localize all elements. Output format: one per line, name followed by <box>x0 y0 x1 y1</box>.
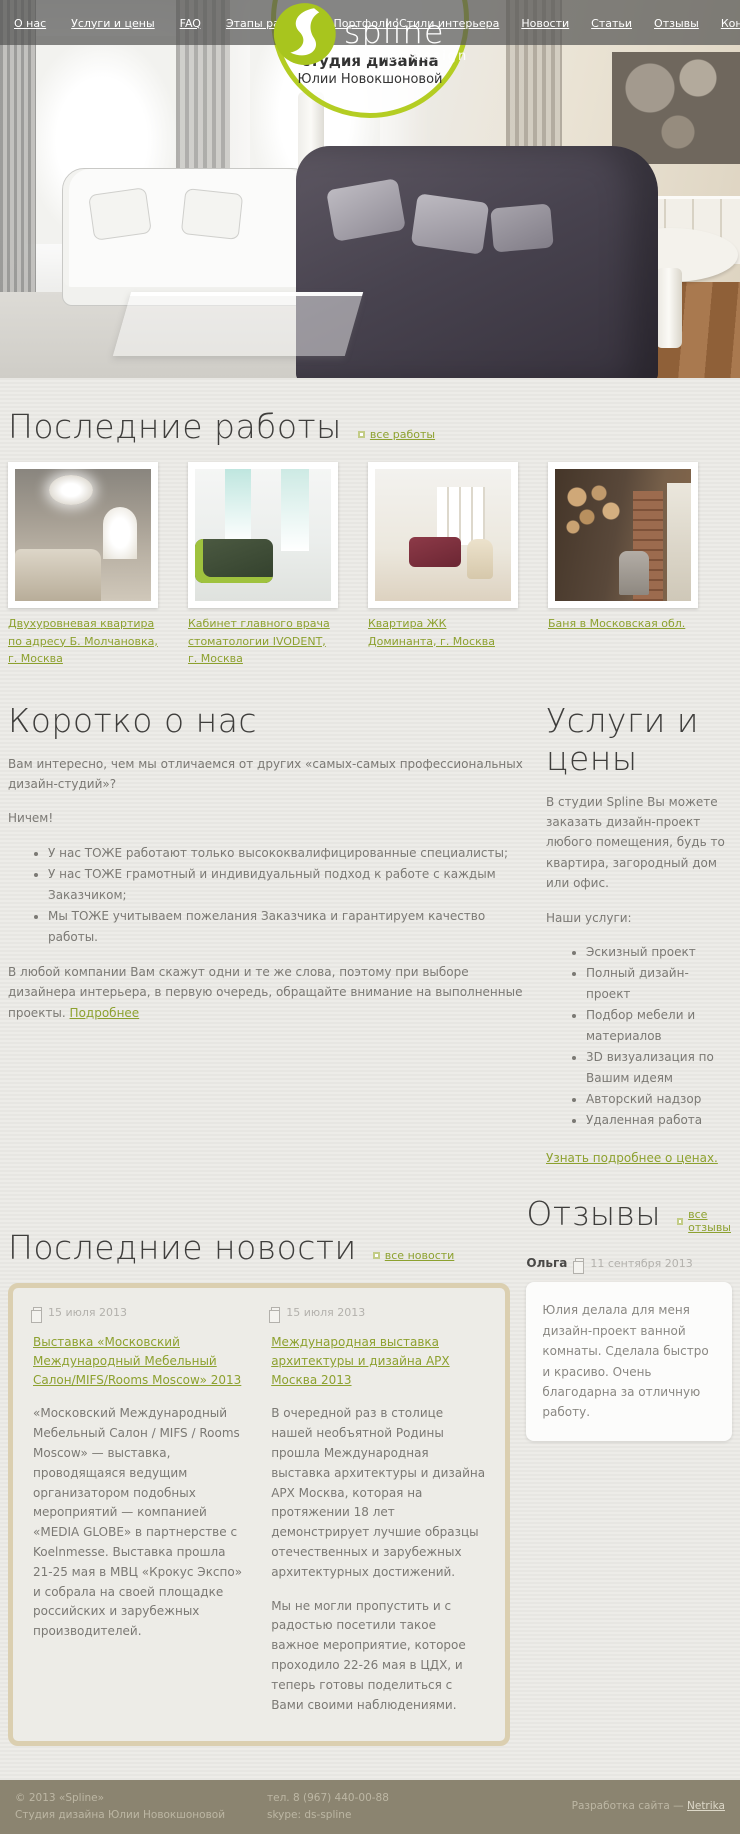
service-item: 3D визуализация по Вашим идеям <box>586 1047 732 1089</box>
service-item: Эскизный проект <box>586 942 732 963</box>
portfolio-thumb-sauna[interactable] <box>555 469 691 601</box>
news-title: Последние новости <box>8 1229 357 1267</box>
news-item-title-link[interactable]: Международная выставка архитектуры и диз… <box>271 1333 485 1391</box>
portfolio-card[interactable] <box>8 462 158 608</box>
spline-logo-icon <box>272 1 338 67</box>
news-item-text: В очередной раз в столице нашей необъятн… <box>271 1404 485 1582</box>
news-date-row: 15 июля 2013 <box>33 1306 247 1319</box>
reviews-section: Отзывы все отзывы Ольга 11 сентября 2013… <box>526 1195 732 1746</box>
footer-contacts-block: тел. 8 (967) 440-00-88 skype: ds-spline <box>267 1790 572 1826</box>
nav-item-about[interactable]: О нас <box>14 17 46 30</box>
hero-sketch-sofa <box>62 168 314 306</box>
hero-table-leg <box>656 268 682 348</box>
about-section: Коротко о нас Вам интересно, чем мы отли… <box>8 702 530 1165</box>
news-date: 15 июля 2013 <box>286 1306 365 1319</box>
spline-logo[interactable]: spline interior design <box>272 1 468 67</box>
all-works-link[interactable]: все работы <box>358 428 435 441</box>
square-bullet-icon <box>373 1252 380 1259</box>
about-intro: Вам интересно, чем мы отличаемся от друг… <box>8 754 530 795</box>
about-services-row: Коротко о нас Вам интересно, чем мы отли… <box>8 702 732 1165</box>
works-title: Последние работы <box>8 408 342 446</box>
hero-leather-sofa <box>296 146 658 378</box>
review-bubble: Юлия делала для меня дизайн-проект ванно… <box>526 1282 732 1440</box>
about-nothing: Ничем! <box>8 808 530 828</box>
nav-item-articles[interactable]: Статьи <box>591 17 632 30</box>
service-item: Удаленная работа <box>586 1110 732 1131</box>
portfolio-thumb-apartment[interactable] <box>375 469 511 601</box>
square-bullet-icon <box>358 431 365 438</box>
about-bullets: У нас ТОЖЕ работают только высококвалифи… <box>48 843 530 948</box>
about-title: Коротко о нас <box>8 702 530 740</box>
footer-copyright-block: © 2013 «Spline» Студия дизайна Юлии Ново… <box>15 1790 267 1826</box>
hero-curtain-left <box>0 0 36 330</box>
logo-words: spline interior design <box>344 6 468 63</box>
news-item-text: «Московский Международный Мебельный Сало… <box>33 1404 247 1642</box>
service-item: Авторский надзор <box>586 1089 732 1110</box>
logo-tagline: interior design <box>344 50 468 63</box>
footer-credit-block: Разработка сайта — Netrika <box>572 1798 725 1816</box>
bottom-spacer <box>8 1746 732 1780</box>
portfolio-thumb-office[interactable] <box>195 469 331 601</box>
portfolio-link-1[interactable]: Двухуровневая квартира по адресу Б. Молч… <box>8 617 158 665</box>
document-icon <box>271 1307 280 1318</box>
footer-studio: Студия дизайна Юлии Новокшоновой <box>15 1807 267 1825</box>
about-bullet: Мы ТОЖЕ учитываем пожелания Заказчика и … <box>48 906 530 948</box>
service-item: Полный дизайн-проект <box>586 963 732 1005</box>
document-icon <box>575 1258 584 1269</box>
footer-copyright: © 2013 «Spline» <box>15 1790 267 1808</box>
footer-credit-prefix: Разработка сайта — <box>572 1800 687 1812</box>
news-item-title-link[interactable]: Выставка «Московский Международный Мебел… <box>33 1333 247 1391</box>
nav-item-contacts[interactable]: Контакты <box>721 17 740 30</box>
portfolio-card[interactable] <box>368 462 518 608</box>
logo-name: spline <box>344 16 468 48</box>
about-more-link[interactable]: Подробнее <box>70 1006 140 1020</box>
footer-phone: тел. 8 (967) 440-00-88 <box>267 1790 572 1808</box>
news-box: 15 июля 2013 Выставка «Московский Междун… <box>8 1283 510 1747</box>
footer-skype: skype: ds-spline <box>267 1807 572 1825</box>
news-section: Последние новости все новости 15 июля 20… <box>8 1195 510 1746</box>
nav-item-services[interactable]: Услуги и цены <box>71 17 155 30</box>
hero-clock-panel <box>612 52 740 164</box>
services-section: Услуги и цены В студии Spline Вы можете … <box>546 702 732 1165</box>
portfolio-link-3[interactable]: Квартира ЖК Доминанта, г. Москва <box>368 617 495 648</box>
nav-item-reviews[interactable]: Отзывы <box>654 17 699 30</box>
nav-item-faq[interactable]: FAQ <box>180 17 201 30</box>
square-bullet-icon <box>677 1218 683 1225</box>
works-section-head: Последние работы все работы <box>8 378 732 446</box>
service-item: Подбор мебели и материалов <box>586 1005 732 1047</box>
all-reviews-link[interactable]: все отзывы <box>677 1208 732 1234</box>
news-reviews-row: Последние новости все новости 15 июля 20… <box>8 1195 732 1746</box>
document-icon <box>33 1307 42 1318</box>
news-section-head: Последние новости все новости <box>8 1229 510 1267</box>
services-list-label: Наши услуги: <box>546 908 732 928</box>
news-item: 15 июля 2013 Выставка «Московский Междун… <box>33 1306 247 1716</box>
news-item-text: Мы не могли пропустить и с радостью посе… <box>271 1597 485 1716</box>
services-title: Услуги и цены <box>546 702 732 778</box>
portfolio-thumb-bedroom[interactable] <box>15 469 151 601</box>
nav-item-news[interactable]: Новости <box>521 17 569 30</box>
news-item: 15 июля 2013 Международная выставка архи… <box>271 1306 485 1716</box>
badge-line2: Юлии Новокшоновой <box>276 72 464 87</box>
portfolio-cards <box>8 462 732 608</box>
review-meta: Ольга 11 сентября 2013 <box>526 1256 732 1270</box>
review-date: 11 сентября 2013 <box>575 1257 692 1270</box>
footer: © 2013 «Spline» Студия дизайна Юлии Ново… <box>0 1780 740 1834</box>
about-bullet: У нас ТОЖЕ работают только высококвалифи… <box>48 843 530 864</box>
portfolio-card[interactable] <box>188 462 338 608</box>
portfolio-link-2[interactable]: Кабинет главного врача стоматологии IVOD… <box>188 617 330 665</box>
news-date: 15 июля 2013 <box>48 1306 127 1319</box>
all-news-link[interactable]: все новости <box>373 1249 455 1262</box>
reviews-section-head: Отзывы все отзывы <box>526 1195 732 1235</box>
services-intro: В студии Spline Вы можете заказать дизай… <box>546 792 732 894</box>
footer-credit-link[interactable]: Netrika <box>687 1800 725 1812</box>
review-author: Ольга <box>526 1256 567 1270</box>
about-bullet: У нас ТОЖЕ грамотный и индивидуальный по… <box>48 864 530 906</box>
reviews-title: Отзывы <box>526 1195 661 1233</box>
hero: студия дизайна Юлии Новокшоновой О нас У… <box>0 0 740 378</box>
about-outro: В любой компании Вам скажут одни и те же… <box>8 962 530 1023</box>
portfolio-card[interactable] <box>548 462 698 608</box>
portfolio-link-4[interactable]: Баня в Московская обл. <box>548 617 685 630</box>
services-list: Эскизный проект Полный дизайн-проект Под… <box>586 942 732 1131</box>
main-content: Последние работы все работы <box>0 378 740 1780</box>
hero-coffee-table <box>113 292 363 356</box>
news-date-row: 15 июля 2013 <box>271 1306 485 1319</box>
portfolio-captions: Двухуровневая квартира по адресу Б. Молч… <box>8 615 732 668</box>
prices-link[interactable]: Узнать подробнее о ценах. <box>546 1151 718 1165</box>
